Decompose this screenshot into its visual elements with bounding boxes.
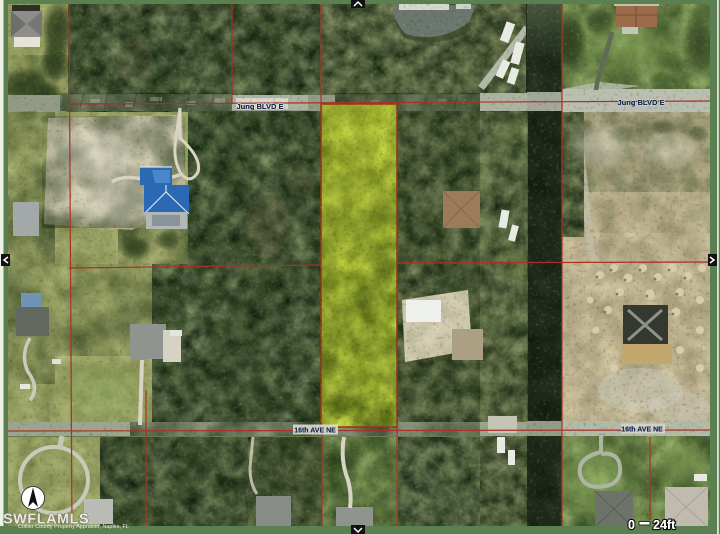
svg-text:0: 0 [628,518,635,532]
svg-text:Jung BLVD E: Jung BLVD E [237,102,284,111]
svg-text:Collier County Property Apprai: Collier County Property Appraiser, Naple… [18,524,129,530]
svg-text:16th AVE NE: 16th AVE NE [621,427,663,434]
svg-text:16th AVE NE: 16th AVE NE [294,428,336,435]
svg-text:24ft: 24ft [653,518,676,532]
svg-text:Jung BLVD E: Jung BLVD E [618,98,665,107]
